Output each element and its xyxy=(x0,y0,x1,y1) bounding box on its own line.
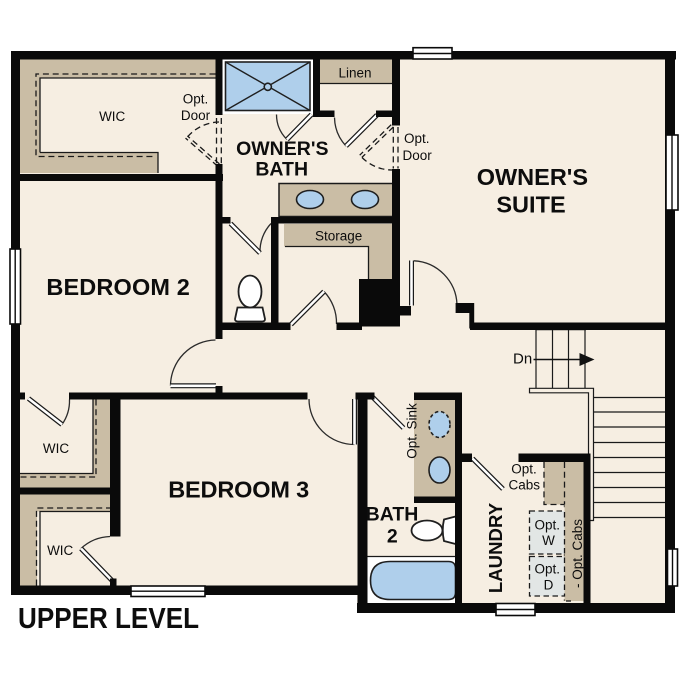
svg-text:Cabs: Cabs xyxy=(509,477,541,492)
svg-text:Opt.: Opt. xyxy=(535,562,561,577)
svg-text:BEDROOM 3: BEDROOM 3 xyxy=(168,477,309,503)
svg-text:Opt.: Opt. xyxy=(535,517,561,532)
svg-text:BATH: BATH xyxy=(366,504,419,526)
svg-text:D: D xyxy=(544,578,554,593)
svg-text:UPPER LEVEL: UPPER LEVEL xyxy=(18,603,199,635)
svg-text:OWNER'S: OWNER'S xyxy=(236,138,328,160)
svg-text:Door: Door xyxy=(403,148,433,163)
svg-text:BEDROOM 2: BEDROOM 2 xyxy=(46,274,190,300)
svg-text:Linen: Linen xyxy=(338,66,371,81)
svg-text:WIC: WIC xyxy=(43,441,69,456)
svg-text:Opt. Sink: Opt. Sink xyxy=(405,403,420,459)
svg-text:Storage: Storage xyxy=(315,229,362,244)
svg-text:2: 2 xyxy=(387,526,398,548)
svg-text:Door: Door xyxy=(181,108,211,123)
svg-text:WIC: WIC xyxy=(99,109,125,124)
svg-text:Opt.: Opt. xyxy=(404,131,430,146)
svg-text:Opt.: Opt. xyxy=(511,462,537,477)
svg-text:OWNER'S: OWNER'S xyxy=(477,164,588,190)
svg-text:Opt.: Opt. xyxy=(183,92,209,107)
svg-text:Dn: Dn xyxy=(513,351,532,368)
svg-text:LAUNDRY: LAUNDRY xyxy=(485,502,506,593)
svg-text:WIC: WIC xyxy=(47,543,73,558)
svg-text:- Opt. Cabs: - Opt. Cabs xyxy=(570,519,585,588)
svg-text:W: W xyxy=(542,533,555,548)
svg-text:SUITE: SUITE xyxy=(496,191,565,217)
svg-text:BATH: BATH xyxy=(255,159,308,181)
